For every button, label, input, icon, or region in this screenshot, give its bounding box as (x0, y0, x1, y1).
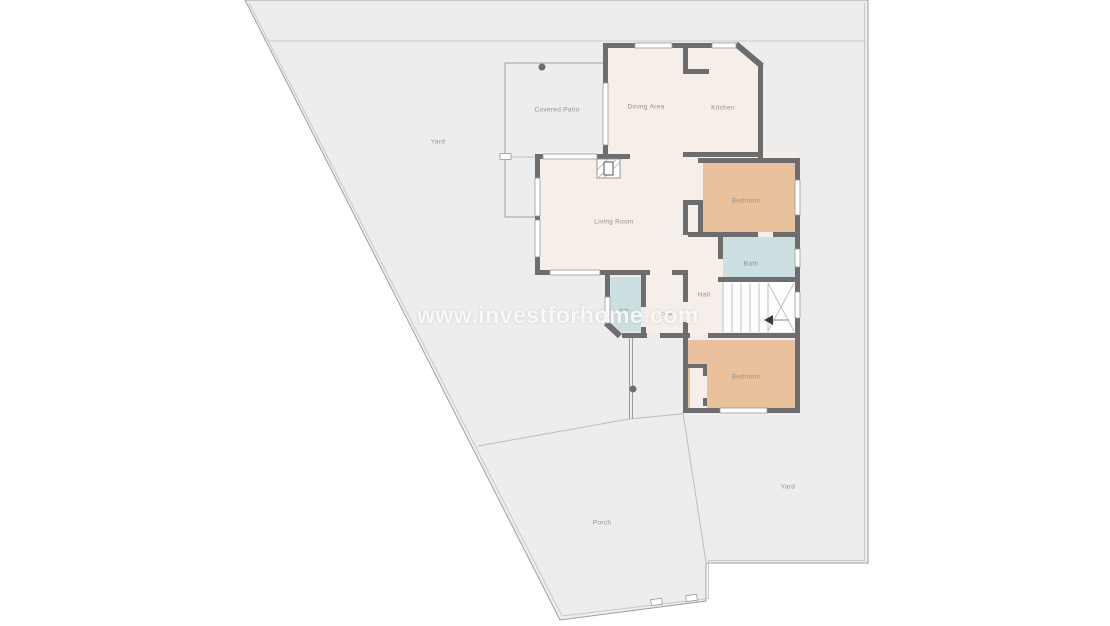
floor-plan-canvas: Yard Covered Patio Dining Area Kitchen L… (0, 0, 1110, 626)
porch-gate-marker (686, 594, 698, 601)
bath-floor (723, 237, 795, 277)
room-label-bath: Bath (744, 261, 759, 268)
room-label-kitchen: Kitchen (711, 105, 735, 112)
room-label-hall: Hall (698, 292, 710, 299)
room-label-dining-area: Dining Area (628, 104, 665, 111)
porch-gate-marker (651, 598, 663, 605)
fence-post-dot (630, 386, 637, 393)
patio-post-dot (539, 64, 546, 71)
room-label-yard-right: Yard (781, 484, 795, 491)
room-label-bedroom-top: Bedroom (732, 198, 760, 205)
watermark-text: www.investforhome.com (417, 302, 699, 329)
room-label-covered-patio: Covered Patio (534, 107, 579, 114)
fireplace-icon (597, 159, 620, 178)
room-label-porch: Porch (593, 520, 611, 527)
room-label-living-room: Living Room (594, 219, 633, 226)
room-label-yard-left: Yard (431, 139, 445, 146)
room-label-bedroom-bottom: Bedroom (732, 374, 760, 381)
patio-opening-marker (500, 154, 511, 160)
